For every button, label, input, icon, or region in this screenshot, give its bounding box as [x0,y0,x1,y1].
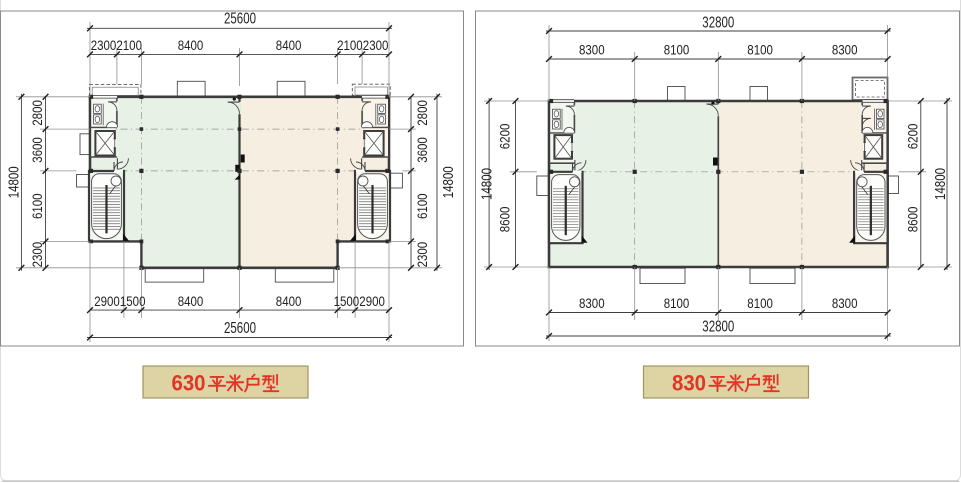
svg-text:830: 830 [672,371,706,396]
svg-text:2800: 2800 [415,100,430,126]
svg-text:6100: 6100 [30,193,45,219]
svg-text:1500: 1500 [120,294,146,309]
svg-text:6100: 6100 [415,193,430,219]
svg-text:8100: 8100 [664,296,690,311]
svg-text:8300: 8300 [832,296,858,311]
svg-text:1500: 1500 [334,294,360,309]
svg-text:8100: 8100 [664,43,690,58]
svg-text:8100: 8100 [747,296,773,311]
svg-text:8600: 8600 [906,207,921,233]
svg-text:25600: 25600 [224,320,256,337]
svg-text:630: 630 [172,371,206,396]
svg-text:2900: 2900 [359,294,385,309]
svg-text:2300: 2300 [415,242,430,268]
svg-text:14800: 14800 [6,166,23,198]
svg-text:32800: 32800 [702,14,734,31]
svg-text:2300: 2300 [30,242,45,268]
svg-text:2100: 2100 [337,38,363,53]
svg-text:14800: 14800 [479,168,496,200]
svg-text:8400: 8400 [178,294,204,309]
svg-text:8400: 8400 [178,38,204,53]
svg-text:2800: 2800 [30,100,45,126]
svg-text:8300: 8300 [832,43,858,58]
svg-text:6200: 6200 [498,124,513,150]
svg-text:8300: 8300 [579,296,605,311]
svg-text:3600: 3600 [30,137,45,163]
svg-text:14800: 14800 [440,166,457,198]
svg-text:2900: 2900 [94,294,120,309]
svg-text:8400: 8400 [276,294,302,309]
svg-text:8600: 8600 [498,207,513,233]
svg-text:6200: 6200 [906,124,921,150]
svg-text:8400: 8400 [276,38,302,53]
svg-text:14800: 14800 [932,168,949,200]
svg-text:2300: 2300 [363,38,389,53]
svg-text:3600: 3600 [415,137,430,163]
svg-text:32800: 32800 [702,319,734,336]
svg-text:8300: 8300 [579,43,605,58]
svg-text:2300: 2300 [91,38,117,53]
svg-text:2100: 2100 [116,38,142,53]
svg-text:8100: 8100 [747,43,773,58]
svg-text:25600: 25600 [224,11,256,28]
